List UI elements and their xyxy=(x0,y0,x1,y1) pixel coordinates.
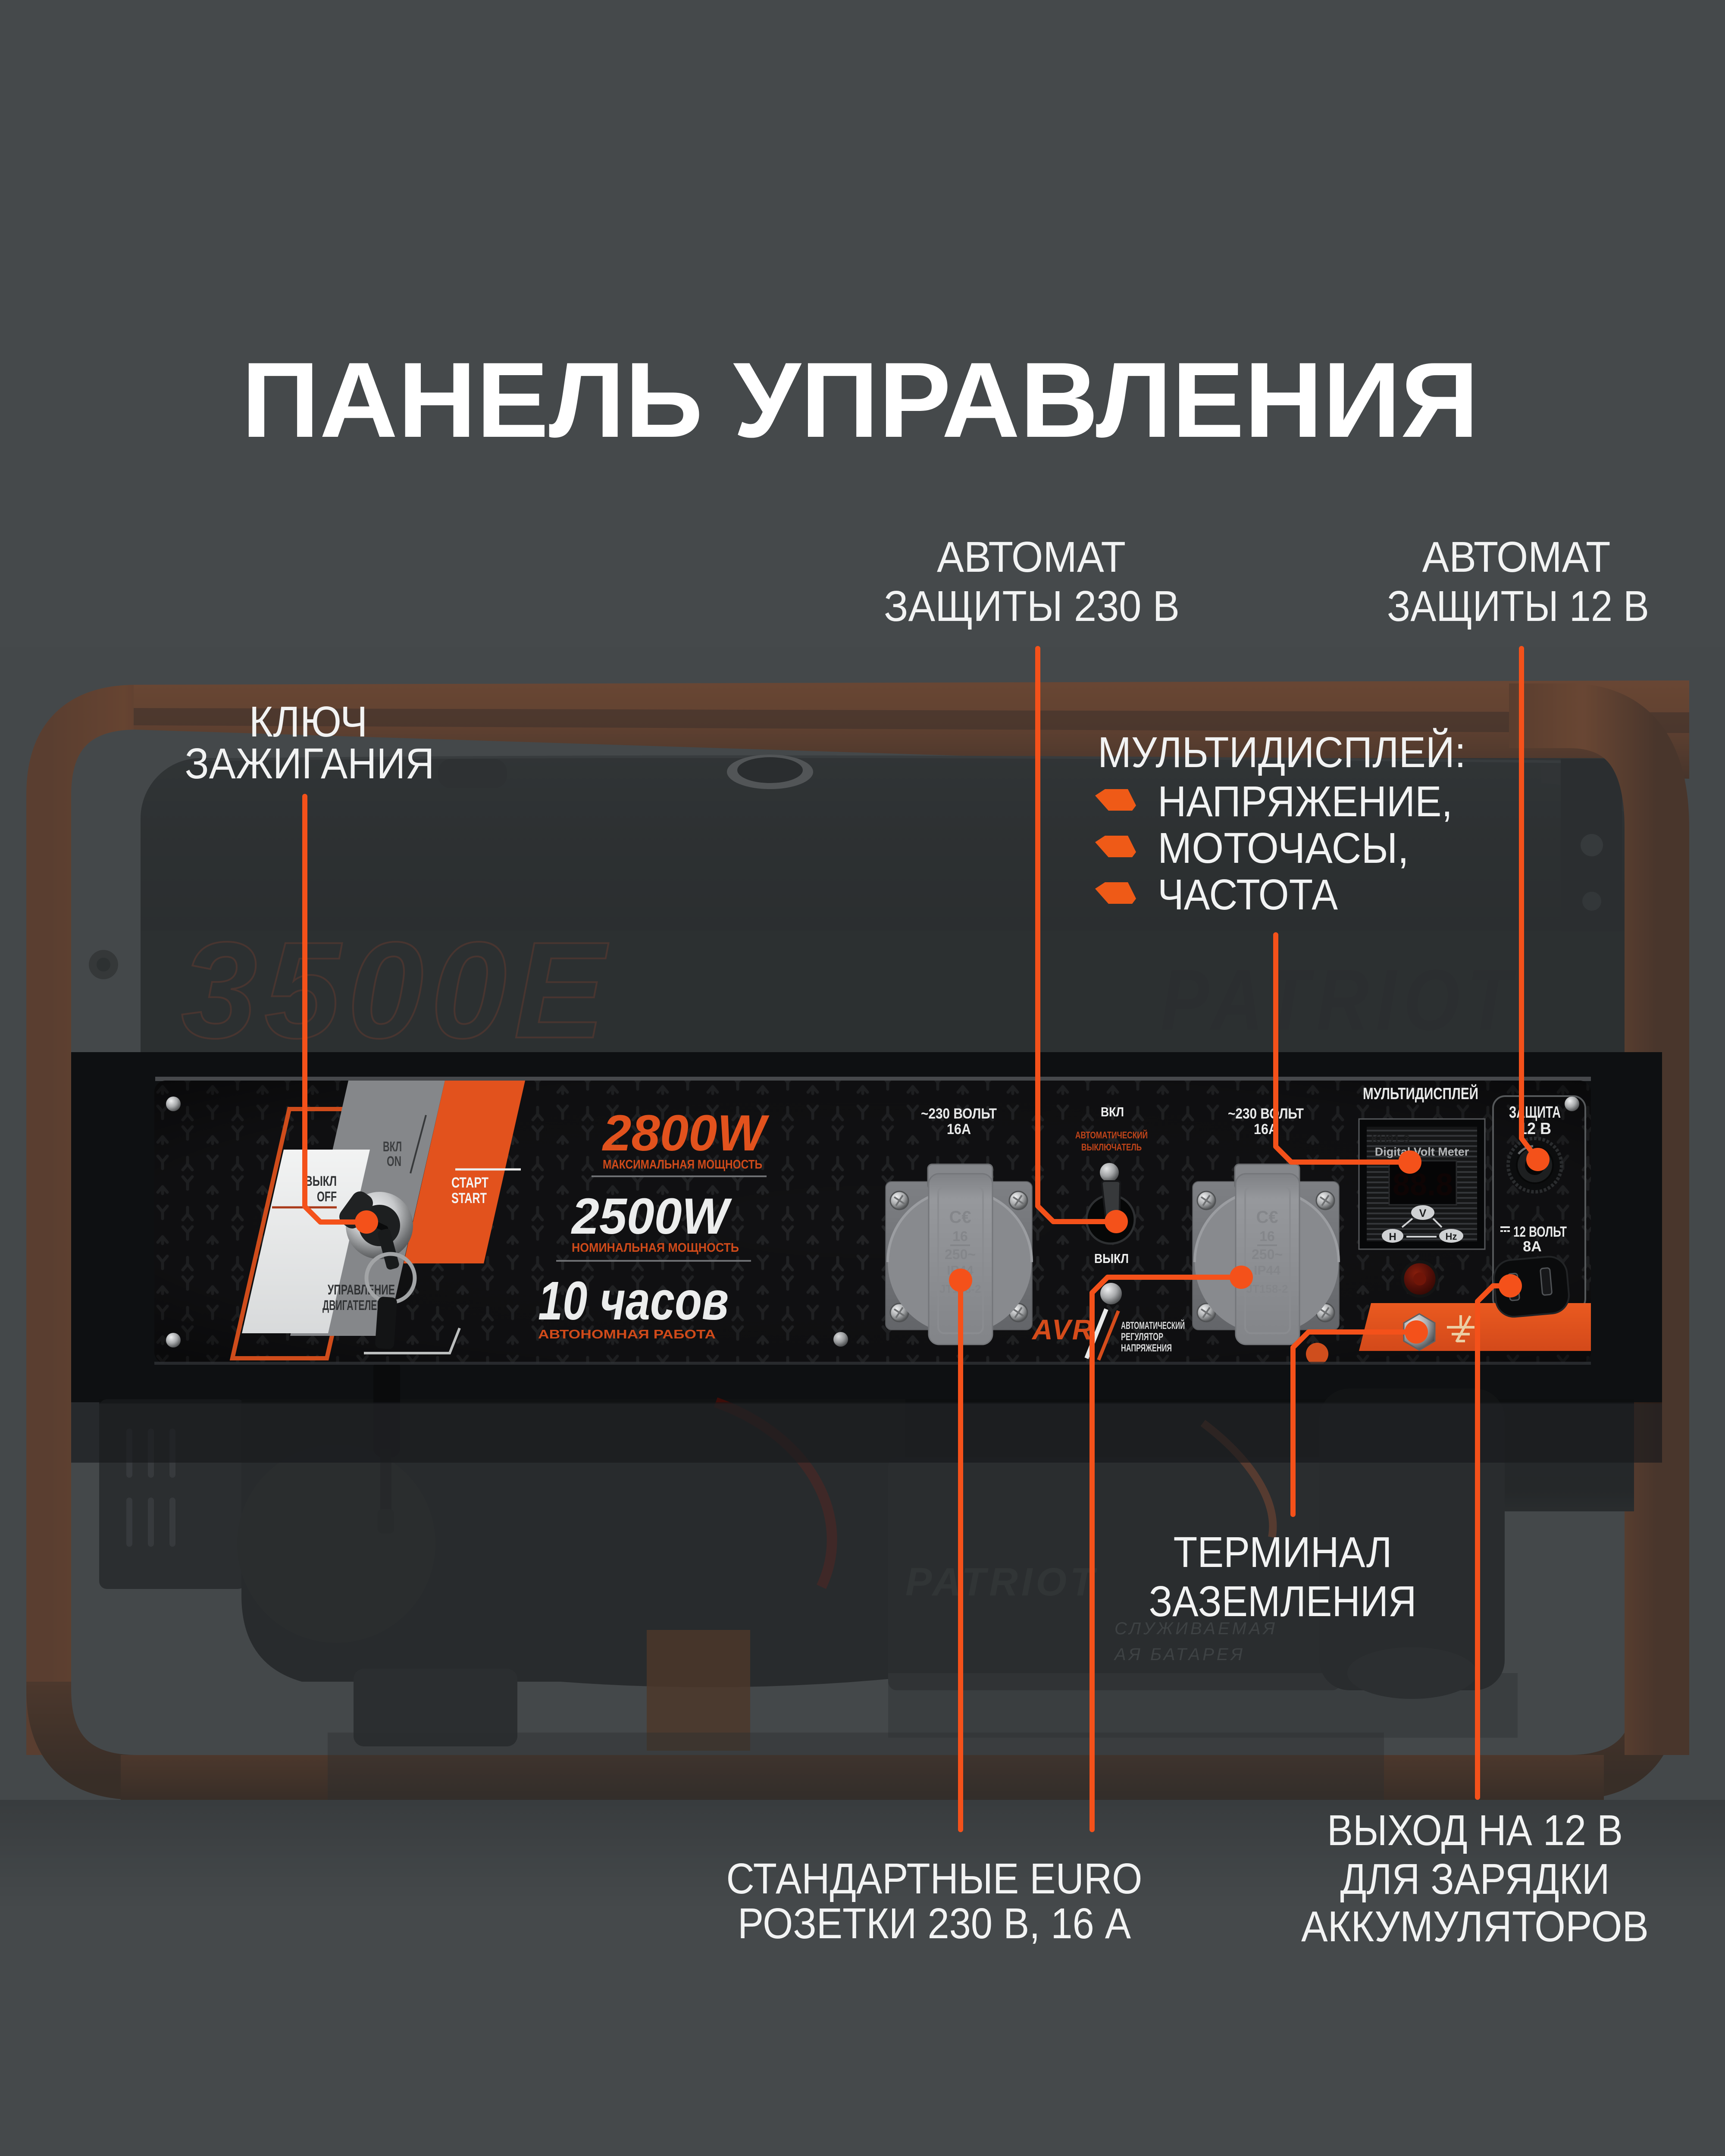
svg-text:АВТОМАТИЧЕСКИЙ: АВТОМАТИЧЕСКИЙ xyxy=(1121,1319,1185,1332)
svg-text:ВЫКЛ: ВЫКЛ xyxy=(1094,1251,1129,1266)
svg-text:~230 ВОЛЬТ: ~230 ВОЛЬТ xyxy=(921,1106,997,1122)
svg-text:AVR: AVR xyxy=(1031,1313,1094,1345)
svg-text:НОМИНАЛЬНАЯ МОЩНОСТЬ: НОМИНАЛЬНАЯ МОЩНОСТЬ xyxy=(572,1241,739,1255)
svg-text:START: START xyxy=(451,1190,487,1206)
svg-text:НАПРЯЖЕНИЯ: НАПРЯЖЕНИЯ xyxy=(1121,1342,1172,1354)
svg-text:МУЛЬТИДИСПЛЕЙ:: МУЛЬТИДИСПЛЕЙ: xyxy=(1098,728,1466,777)
svg-text:АВТОНОМНАЯ РАБОТА: АВТОНОМНАЯ РАБОТА xyxy=(538,1328,716,1341)
svg-text:ЗАЗЕМЛЕНИЯ: ЗАЗЕМЛЕНИЯ xyxy=(1149,1577,1417,1626)
svg-text:ДЛЯ ЗАРЯДКИ: ДЛЯ ЗАРЯДКИ xyxy=(1340,1855,1610,1903)
svg-text:ВЫХОД НА 12 В: ВЫХОД НА 12 В xyxy=(1327,1806,1623,1855)
svg-text:OFF: OFF xyxy=(317,1189,337,1204)
svg-text:ЗАЩИТА: ЗАЩИТА xyxy=(1509,1103,1561,1122)
svg-text:АВТОМАТИЧЕСКИЙ: АВТОМАТИЧЕСКИЙ xyxy=(1075,1130,1148,1141)
svg-text:УПРАВЛЕНИЕ: УПРАВЛЕНИЕ xyxy=(328,1282,395,1297)
svg-text:ЗАЖИГАНИЯ: ЗАЖИГАНИЯ xyxy=(185,740,435,788)
svg-text:Hz: Hz xyxy=(1446,1231,1457,1242)
svg-text:ON: ON xyxy=(387,1153,401,1169)
svg-text:КЛЮЧ: КЛЮЧ xyxy=(249,698,368,746)
svg-text:16А: 16А xyxy=(947,1121,971,1138)
svg-text:ЗАЩИТЫ 230 В: ЗАЩИТЫ 230 В xyxy=(884,582,1180,630)
svg-text:МАКСИМАЛЬНАЯ МОЩНОСТЬ: МАКСИМАЛЬНАЯ МОЩНОСТЬ xyxy=(603,1158,762,1172)
svg-text:ТЕРМИНАЛ: ТЕРМИНАЛ xyxy=(1174,1528,1392,1576)
svg-text:СТАНДАРТНЫЕ EURO: СТАНДАРТНЫЕ EURO xyxy=(726,1855,1143,1903)
svg-text:РЕГУЛЯТОР: РЕГУЛЯТОР xyxy=(1121,1331,1163,1343)
svg-text:АВТОМАТ: АВТОМАТ xyxy=(1422,533,1611,581)
svg-text:ПАНЕЛЬ УПРАВЛЕНИЯ: ПАНЕЛЬ УПРАВЛЕНИЯ xyxy=(241,340,1479,460)
svg-text:V: V xyxy=(1419,1207,1427,1219)
svg-text:ВЫКЛ: ВЫКЛ xyxy=(305,1173,337,1189)
svg-text:ВКЛ: ВКЛ xyxy=(1101,1104,1124,1119)
svg-text:10 часов: 10 часов xyxy=(538,1270,729,1331)
svg-text:KH91-3: KH91-3 xyxy=(1371,1132,1410,1145)
svg-text:АВТОМАТ: АВТОМАТ xyxy=(937,533,1126,581)
svg-text:ЧАСТОТА: ЧАСТОТА xyxy=(1158,871,1338,919)
svg-text:12 ВОЛЬТ: 12 ВОЛЬТ xyxy=(1513,1224,1567,1240)
svg-text:Digital Volt Meter: Digital Volt Meter xyxy=(1375,1145,1469,1158)
svg-text:H: H xyxy=(1389,1231,1396,1243)
svg-text:АККУМУЛЯТОРОВ: АККУМУЛЯТОРОВ xyxy=(1301,1902,1649,1951)
svg-text:ВКЛ: ВКЛ xyxy=(383,1139,402,1154)
svg-text:РОЗЕТКИ 230 В, 16 А: РОЗЕТКИ 230 В, 16 А xyxy=(738,1899,1131,1948)
svg-text:ВЫКЛЮЧАТЕЛЬ: ВЫКЛЮЧАТЕЛЬ xyxy=(1081,1142,1142,1153)
svg-text:МОТОЧАСЫ,: МОТОЧАСЫ, xyxy=(1158,824,1409,872)
svg-text:2500W: 2500W xyxy=(571,1188,732,1245)
svg-text:8А: 8А xyxy=(1523,1238,1541,1255)
svg-text:88.8: 88.8 xyxy=(1393,1168,1453,1202)
svg-text:2800W: 2800W xyxy=(602,1105,770,1162)
svg-text:СТАРТ: СТАРТ xyxy=(451,1175,488,1191)
svg-text:МУЛЬТИДИСПЛЕЙ: МУЛЬТИДИСПЛЕЙ xyxy=(1363,1084,1478,1103)
svg-text:ДВИГАТЕЛЕМ: ДВИГАТЕЛЕМ xyxy=(322,1297,385,1313)
svg-text:~230 ВОЛЬТ: ~230 ВОЛЬТ xyxy=(1228,1106,1304,1122)
svg-text:ЗАЩИТЫ 12 В: ЗАЩИТЫ 12 В xyxy=(1387,582,1649,630)
svg-text:НАПРЯЖЕНИЕ,: НАПРЯЖЕНИЕ, xyxy=(1158,777,1453,826)
